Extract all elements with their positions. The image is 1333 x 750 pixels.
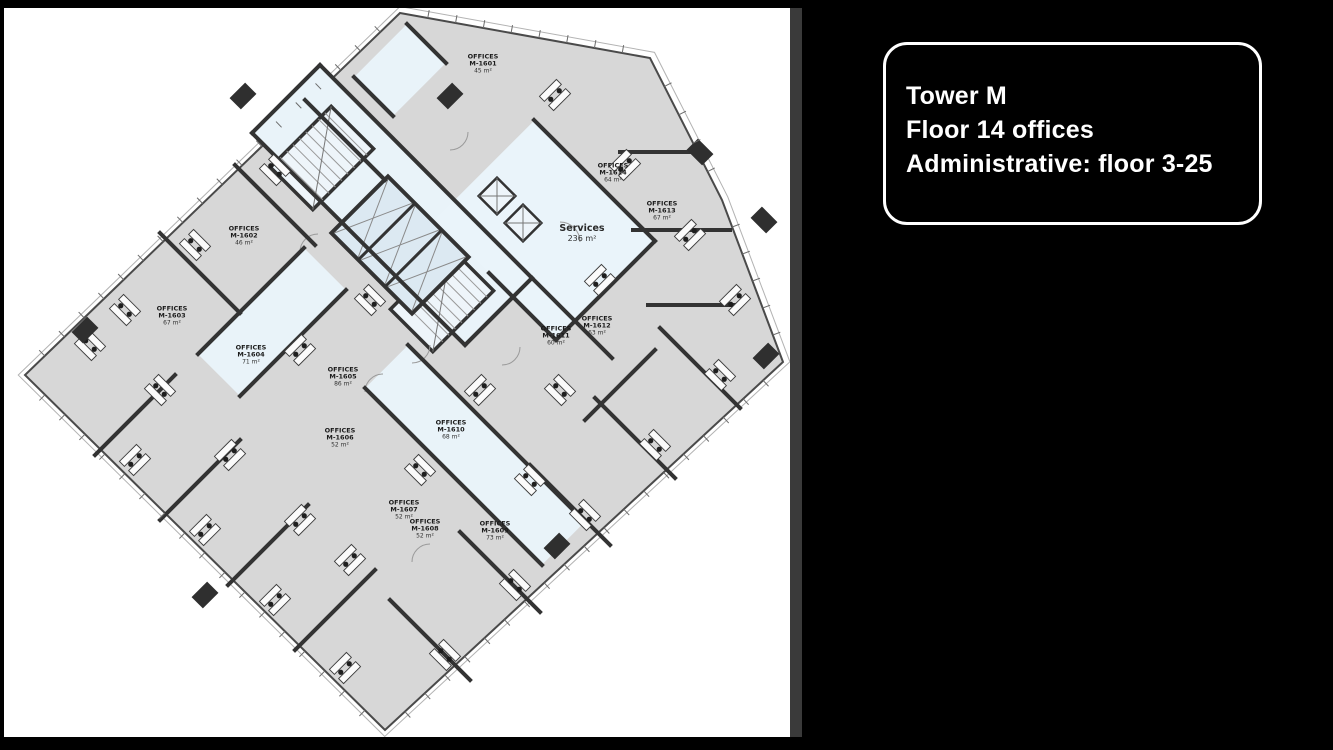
slide: OFFICESM-160145 m²OFFICESM-160246 m²OFFI… — [0, 0, 1333, 750]
info-box: Tower M Floor 14 offices Administrative:… — [883, 42, 1262, 225]
info-line-tower: Tower M — [906, 79, 1245, 113]
info-line-floor: Floor 14 offices — [906, 113, 1245, 147]
floor-plan-drawing — [4, 8, 790, 737]
info-line-admin: Administrative: floor 3-25 — [906, 147, 1245, 181]
annotation-panel: Tower M Floor 14 offices Administrative:… — [802, 0, 1333, 750]
floor-plan: OFFICESM-160145 m²OFFICESM-160246 m²OFFI… — [4, 8, 790, 737]
floor-plan-panel: OFFICESM-160145 m²OFFICESM-160246 m²OFFI… — [4, 8, 802, 737]
